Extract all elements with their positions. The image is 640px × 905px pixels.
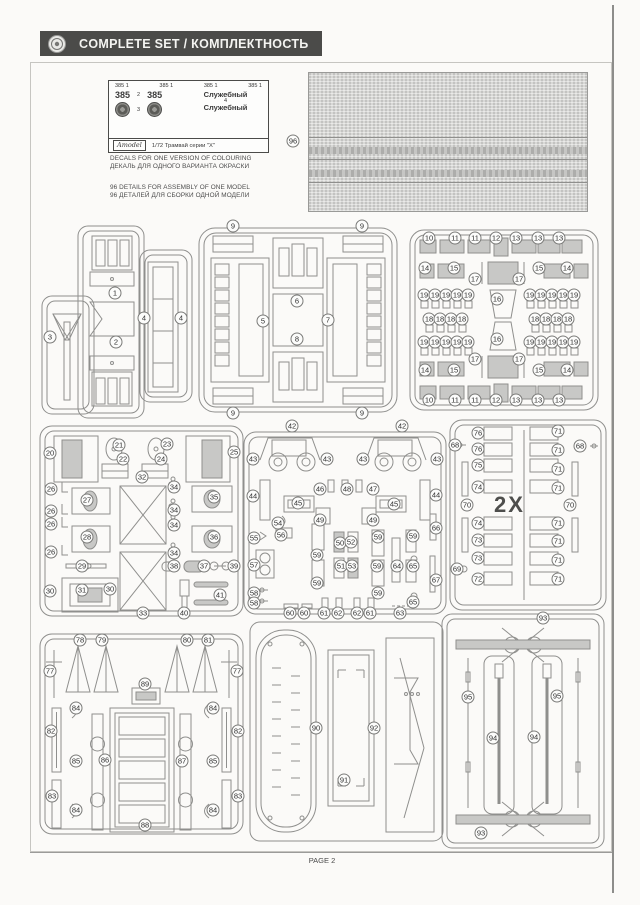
sprue-quantity-label: 2X (494, 492, 525, 518)
part-number-badge: 43 (247, 453, 260, 466)
part-number-badge: 52 (345, 536, 358, 549)
sprue-h: 909192 (248, 618, 445, 845)
part-number-badge: 84 (207, 702, 220, 715)
part-number-badge: 8 (291, 333, 304, 346)
part-number-badge: 91 (338, 774, 351, 787)
part-number-badge: 84 (207, 804, 220, 817)
part-number-badge: 89 (139, 678, 152, 691)
part-number-badge: 31 (76, 584, 89, 597)
part-number-badge: 66 (430, 522, 443, 535)
header-bar: COMPLETE SET / КОМПЛЕКТНОСТЬ (40, 31, 322, 56)
part-number-badge: 85 (70, 755, 83, 768)
part-number-badge: 80 (181, 634, 194, 647)
mesh-line (309, 137, 587, 138)
part-number-badge: 15 (533, 364, 546, 377)
part-number-badge: 42 (396, 420, 409, 433)
decal-top-row: 385 1 385 1 385 1 385 1 (109, 81, 268, 89)
part-number-badge: 10 (423, 394, 436, 407)
part-number-badge: 17 (469, 353, 482, 366)
part-number-badge: 59 (372, 587, 385, 600)
part-number-badge: 71 (552, 425, 565, 438)
part-number-badge: 45 (388, 498, 401, 511)
part-number-badge: 19 (462, 336, 475, 349)
sprue-a: 12344 (40, 224, 196, 420)
part-number-badge: 17 (513, 353, 526, 366)
part-number-badge: 68 (574, 440, 587, 453)
part-number-badge: 7 (322, 314, 335, 327)
part-number-badge: 44 (430, 489, 443, 502)
part-number-badge: 78 (74, 634, 87, 647)
part-number-badge: 28 (81, 531, 94, 544)
part-number-badge: 13 (510, 232, 523, 245)
part-number-badge: 84 (70, 702, 83, 715)
part-number-badge: 9 (227, 220, 240, 233)
part-number-badge: 9 (227, 407, 240, 420)
mesh-roof-panel-part-96 (308, 72, 588, 212)
part-number-badge: 34 (168, 547, 181, 560)
part-number-badge: 14 (419, 262, 432, 275)
part-number-badge: 15 (448, 364, 461, 377)
part-number-badge: 34 (168, 481, 181, 494)
decal-number-large: 385 (147, 90, 162, 100)
part-number-badge: 9 (356, 407, 369, 420)
part-number-badge: 25 (228, 446, 241, 459)
part-number-badge: 81 (202, 634, 215, 647)
sprue-d-drawing (38, 424, 245, 618)
sprue-d: 2021222324253226272626282629303130333434… (38, 424, 245, 618)
part-number-badge: 17 (469, 273, 482, 286)
part-number-badge: 63 (394, 607, 407, 620)
part-number-badge: 40 (178, 607, 191, 620)
part-number-badge: 95 (462, 691, 475, 704)
mesh-line (309, 182, 587, 183)
part-number-badge: 11 (469, 394, 482, 407)
part-number-badge: 64 (391, 560, 404, 573)
sprue-e: 4242434343434446484744454554494959596655… (242, 420, 448, 618)
decal-number-large: 385 (115, 90, 130, 100)
decal-number: 385 1 (159, 83, 173, 89)
part-number-badge: 24 (155, 453, 168, 466)
part-number-badge: 13 (553, 232, 566, 245)
part-number-badge: 14 (561, 262, 574, 275)
part-number-badge: 87 (176, 755, 189, 768)
part-number-badge: 36 (208, 531, 221, 544)
part-number-badge: 23 (161, 438, 174, 451)
part-number-badge: 70 (564, 499, 577, 512)
part-number-badge: 62 (351, 607, 364, 620)
part-number-badge: 11 (449, 232, 462, 245)
part-number-badge: 26 (45, 505, 58, 518)
decal-main-area: 385 2 385 3 Служебный 4 Служебный (109, 89, 268, 117)
part-number-badge: 4 (138, 312, 151, 325)
decal-number: 385 1 (248, 83, 262, 89)
part-number-badge: 13 (510, 394, 523, 407)
part-number-badge: 13 (532, 232, 545, 245)
part-number-badge: 93 (537, 612, 550, 625)
part-number-badge: 41 (214, 589, 227, 602)
part-number-badge: 18 (456, 313, 469, 326)
part-number-badge: 26 (45, 518, 58, 531)
part-number-badge: 84 (70, 804, 83, 817)
decal-scale-line: 1/72 Трамвай серии "Х" (152, 143, 215, 149)
page-number: PAGE 2 (272, 856, 372, 865)
part-number-badge: 71 (552, 573, 565, 586)
part-number-badge: 49 (314, 514, 327, 527)
sprue-h-drawing (248, 618, 445, 845)
part-number-badge: 65 (407, 560, 420, 573)
decal-index: 3 (137, 107, 140, 113)
part-number-badge: 39 (228, 560, 241, 573)
note-details-en: 96 DETAILS FOR ASSEMBLY OF ONE MODEL (110, 184, 250, 192)
part-number-badge: 13 (532, 394, 545, 407)
part-number-badge: 4 (175, 312, 188, 325)
part-number-badge: 82 (232, 725, 245, 738)
part-number-badge: 16 (491, 333, 504, 346)
part-number-badge: 73 (472, 534, 485, 547)
decal-number: 385 1 (204, 83, 218, 89)
decal-footer: Amodel 1/72 Трамвай серии "Х" (109, 138, 268, 152)
part-number-badge: 77 (44, 665, 57, 678)
part-number-badge: 43 (357, 453, 370, 466)
decal-word: Служебный (187, 104, 264, 112)
part-number-badge: 61 (364, 607, 377, 620)
part-number-badge: 82 (45, 725, 58, 738)
part-number-badge: 12 (490, 394, 503, 407)
part-number-badge: 43 (431, 453, 444, 466)
part-number-badge: 76 (472, 443, 485, 456)
part-number-badge: 65 (407, 596, 420, 609)
footer-divider (30, 852, 612, 853)
part-number-badge: 13 (553, 394, 566, 407)
decal-number: 385 1 (115, 83, 129, 89)
part-number-badge: 2 (110, 336, 123, 349)
sprue-i-drawing (440, 612, 608, 852)
part-number-badge: 17 (513, 273, 526, 286)
part-number-badge: 19 (568, 336, 581, 349)
part-number-badge: 5 (257, 315, 270, 328)
part-number-badge: 71 (552, 482, 565, 495)
part-number-badge: 79 (96, 634, 109, 647)
part-number-badge: 14 (561, 364, 574, 377)
decal-index: 2 (137, 92, 140, 98)
part-number-badge: 71 (552, 535, 565, 548)
part-number-badge: 55 (248, 532, 261, 545)
brand-logo: Amodel (113, 140, 146, 151)
part-number-badge: 14 (419, 364, 432, 377)
part-number-badge: 30 (44, 585, 57, 598)
part-number-badge: 42 (286, 420, 299, 433)
part-number-badge: 90 (310, 722, 323, 735)
part-number-badge: 34 (168, 504, 181, 517)
part-number-badge: 59 (311, 549, 324, 562)
part-number-badge: 33 (137, 607, 150, 620)
part-number-badge: 76 (472, 427, 485, 440)
part-number-badge: 37 (198, 560, 211, 573)
part-number-badge: 58 (248, 597, 261, 610)
part-number-badge: 67 (430, 574, 443, 587)
part-number-badge: 71 (552, 463, 565, 476)
part-number-badge: 49 (367, 514, 380, 527)
part-number-badge: 71 (552, 517, 565, 530)
note-decals-ru: ДЕКАЛЬ ДЛЯ ОДНОГО ВАРИАНТА ОКРАСКИ (110, 163, 249, 171)
sprue-f: 2X 6868697070767675747473737271717171717… (448, 418, 608, 612)
part-number-badge: 18 (562, 313, 575, 326)
page-edge-line (612, 5, 614, 893)
part-number-badge: 61 (318, 607, 331, 620)
part-number-badge: 93 (475, 827, 488, 840)
part-number-badge: 86 (99, 754, 112, 767)
part-number-badge: 6 (291, 295, 304, 308)
part-number-badge: 56 (275, 529, 288, 542)
part-number-badge: 10 (423, 232, 436, 245)
part-number-badge: 48 (341, 483, 354, 496)
part-number-badge: 92 (368, 722, 381, 735)
part-number-badge: 38 (168, 560, 181, 573)
part-number-badge: 59 (371, 560, 384, 573)
part-number-badge: 60 (298, 607, 311, 620)
mesh-band (309, 147, 587, 154)
part-number-badge: 70 (461, 499, 474, 512)
part-number-badge: 85 (207, 755, 220, 768)
part-number-badge: 53 (346, 560, 359, 573)
part-number-badge: 27 (81, 494, 94, 507)
brand-rosette-icon (47, 34, 67, 54)
part-number-badge: 88 (139, 819, 152, 832)
part-number-badge: 77 (231, 665, 244, 678)
part-number-badge: 69 (451, 563, 464, 576)
part-number-badge: 15 (448, 262, 461, 275)
part-number-badge: 73 (472, 552, 485, 565)
part-number-badge: 47 (367, 483, 380, 496)
part-number-badge: 3 (44, 331, 57, 344)
part-number-badge: 20 (44, 447, 57, 460)
part-number-badge: 9 (356, 220, 369, 233)
part-number-badge: 60 (284, 607, 297, 620)
part-number-badge: 22 (117, 453, 130, 466)
part-number-badge: 83 (232, 790, 245, 803)
part-number-badge: 74 (472, 517, 485, 530)
part-number-badge: 44 (247, 490, 260, 503)
decal-emblem-icon (147, 102, 162, 117)
part-number-badge: 94 (528, 731, 541, 744)
part-number-badge: 15 (533, 262, 546, 275)
part-number-badge: 94 (487, 732, 500, 745)
part-number-badge: 35 (208, 491, 221, 504)
part-number-badge: 11 (449, 394, 462, 407)
decal-sheet: 385 1 385 1 385 1 385 1 385 2 385 3 Служ… (108, 80, 269, 153)
part-number-badge: 16 (491, 293, 504, 306)
part-number-badge: 46 (314, 483, 327, 496)
part-number-badge: 59 (311, 577, 324, 590)
part-number-badge: 59 (372, 531, 385, 544)
part-number-badge: 74 (472, 481, 485, 494)
part-number-badge: 45 (292, 497, 305, 510)
sprue-i: 939395959494 (440, 612, 608, 852)
part-number-badge: 75 (472, 459, 485, 472)
part-number-badge: 57 (248, 559, 261, 572)
part-number-badge: 29 (76, 560, 89, 573)
part-number-badge: 72 (472, 573, 485, 586)
part-number-badge: 26 (45, 546, 58, 559)
part-number-badge: 95 (551, 690, 564, 703)
sprue-g: 7879808177778984848484828285858687838388 (38, 630, 245, 838)
part-number-badge: 26 (45, 483, 58, 496)
instruction-page: COMPLETE SET / КОМПЛЕКТНОСТЬ 385 1 385 1… (0, 0, 640, 905)
part-number-badge: 59 (407, 530, 420, 543)
sprue-a-drawing (40, 224, 196, 420)
part-number-badge: 43 (321, 453, 334, 466)
part-number-badge: 71 (552, 554, 565, 567)
part-number-badge: 62 (332, 607, 345, 620)
part-number-badge: 1 (109, 287, 122, 300)
sprue-c: 1011111213131314151716171514191919191919… (408, 228, 600, 412)
sprue-b: 99995678 (197, 224, 399, 416)
part-number-badge: 71 (552, 444, 565, 457)
part-number-badge: 19 (568, 289, 581, 302)
part-number-badge: 54 (272, 517, 285, 530)
sprue-b-drawing (197, 224, 399, 416)
part-number-badge: 12 (490, 232, 503, 245)
part-number-badge: 68 (449, 439, 462, 452)
mesh-line (309, 159, 587, 160)
note-decals-en: DECALS FOR ONE VERSION OF COLOURING (110, 155, 252, 163)
part-number-badge: 32 (136, 471, 149, 484)
decal-emblem-icon (115, 102, 130, 117)
page-title: COMPLETE SET / КОМПЛЕКТНОСТЬ (79, 37, 309, 51)
note-details-ru: 96 ДЕТАЛЕЙ ДЛЯ СБОРКИ ОДНОЙ МОДЕЛИ (110, 192, 249, 200)
mesh-band (309, 170, 587, 177)
part-number-badge: 83 (46, 790, 59, 803)
part-number-badge: 34 (168, 519, 181, 532)
part-number-badge: 19 (462, 289, 475, 302)
part-number-badge: 21 (113, 439, 126, 452)
part-number-badge: 11 (469, 232, 482, 245)
part-number-badge: 30 (104, 583, 117, 596)
